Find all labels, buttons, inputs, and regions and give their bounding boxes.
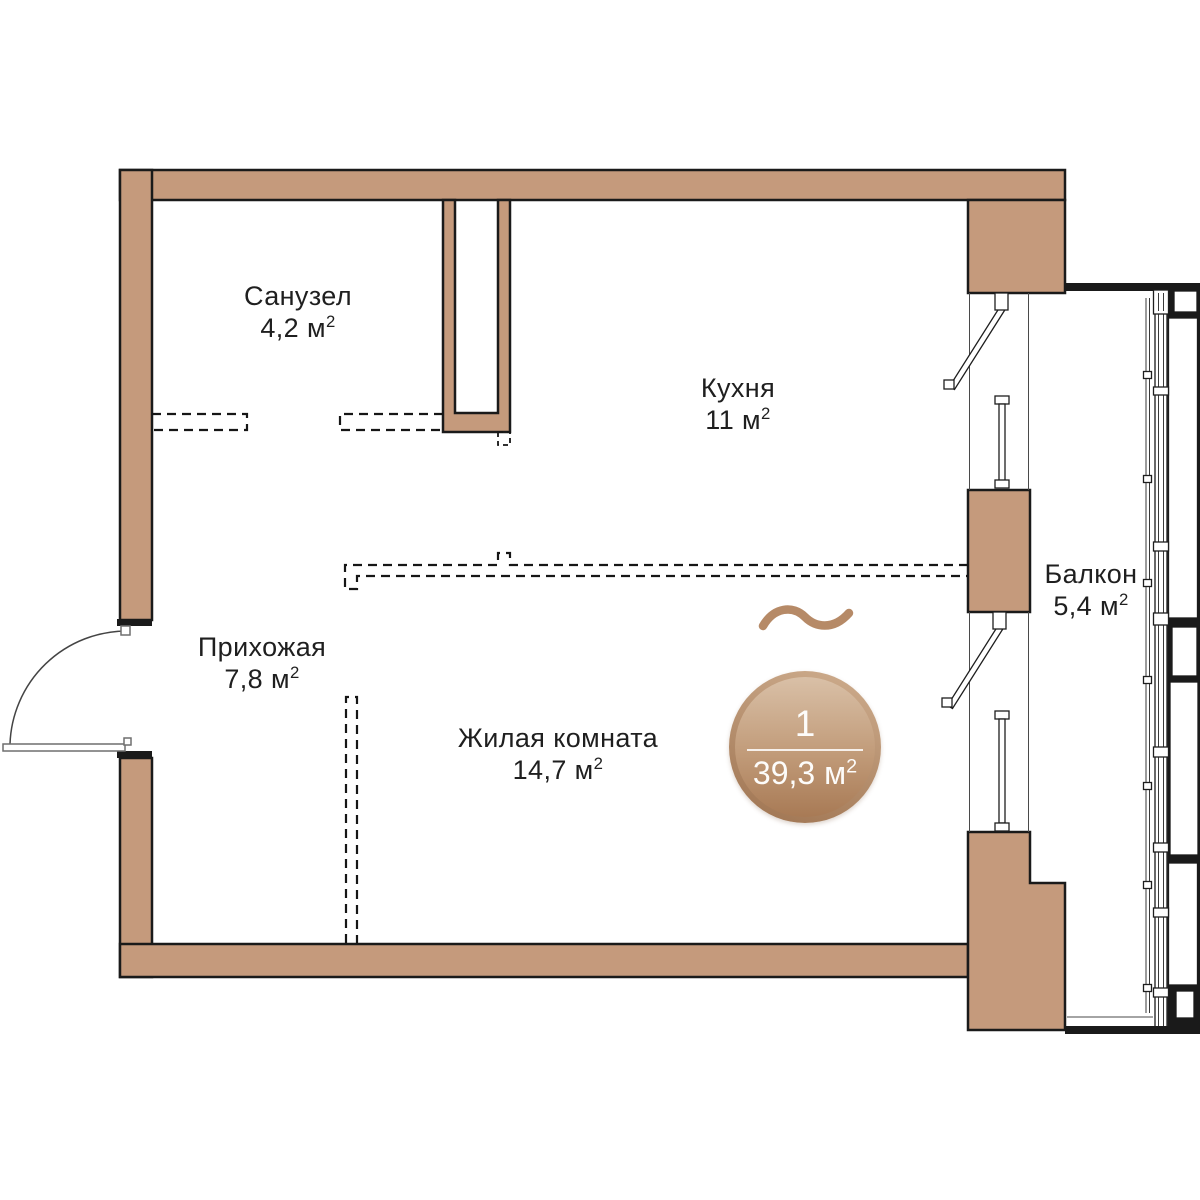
- area-wave-icon: [763, 610, 849, 626]
- entrance-door: [3, 619, 152, 758]
- badge-rooms-count: 1: [795, 705, 816, 742]
- room-area: 14,7 м2: [458, 755, 658, 787]
- room-label-living-room: Жилая комната 14,7 м2: [458, 723, 658, 787]
- wall-bottom: [120, 944, 968, 977]
- room-label-balcony: Балкон 5,4 м2: [1045, 559, 1138, 623]
- kitchen-window: [944, 293, 1029, 490]
- wall-left-upper: [120, 170, 152, 620]
- wall-duct-shaft: [443, 200, 510, 432]
- open-sash-icon: [950, 308, 1005, 390]
- facade-panel-3: [1172, 627, 1197, 676]
- apartment-badge: 1 39,3 м2: [729, 671, 881, 823]
- room-name: Жилая комната: [458, 723, 658, 754]
- balcony-structure: [1065, 283, 1200, 1034]
- floor-plan-canvas: Санузел 4,2 м2 Кухня 11 м2 Прихожая 7,8 …: [0, 0, 1200, 1200]
- partition-bathroom-right: [340, 414, 443, 430]
- room-name: Кухня: [701, 373, 775, 404]
- room-area: 4,2 м2: [244, 313, 352, 345]
- wall-corner-top-right: [968, 200, 1065, 293]
- partition-kitchen-living: [345, 553, 968, 589]
- open-sash-icon: [948, 627, 1003, 709]
- partition-bathroom-left: [152, 414, 247, 430]
- floor-plan-drawing: [0, 0, 1200, 1200]
- room-area: 7,8 м2: [198, 664, 326, 696]
- door-swing-arc: [10, 631, 127, 744]
- door-jamb-top: [117, 619, 152, 626]
- room-name: Санузел: [244, 281, 352, 312]
- balcony-railing: [1144, 298, 1152, 1013]
- badge-divider: [747, 749, 863, 751]
- room-area: 5,4 м2: [1045, 591, 1138, 623]
- door-leaf: [3, 744, 125, 751]
- room-name: Балкон: [1045, 559, 1138, 590]
- apartment-badge-inner: 1 39,3 м2: [735, 677, 875, 817]
- facade-panel-1: [1174, 291, 1197, 312]
- room-name: Прихожая: [198, 632, 326, 663]
- room-label-hallway: Прихожая 7,8 м2: [198, 632, 326, 696]
- duct-hatch: [498, 432, 510, 445]
- partition-hallway-living: [346, 697, 357, 943]
- door-jamb-bottom: [117, 751, 152, 758]
- badge-total-area: 39,3 м2: [753, 757, 857, 789]
- room-label-kitchen: Кухня 11 м2: [701, 373, 775, 437]
- facade-panel-6: [1176, 991, 1194, 1018]
- wall-top: [120, 170, 1065, 200]
- wall-window-pier: [968, 490, 1030, 612]
- facade-panel-5: [1169, 863, 1198, 985]
- wall-block-bottom-right: [968, 832, 1065, 1030]
- room-label-bathroom: Санузел 4,2 м2: [244, 281, 352, 345]
- facade-panel-4: [1170, 682, 1198, 855]
- room-area: 11 м2: [701, 405, 775, 437]
- balcony-glazing: [1154, 290, 1169, 1026]
- facade-panel-2: [1169, 318, 1198, 618]
- living-room-window: [942, 612, 1029, 832]
